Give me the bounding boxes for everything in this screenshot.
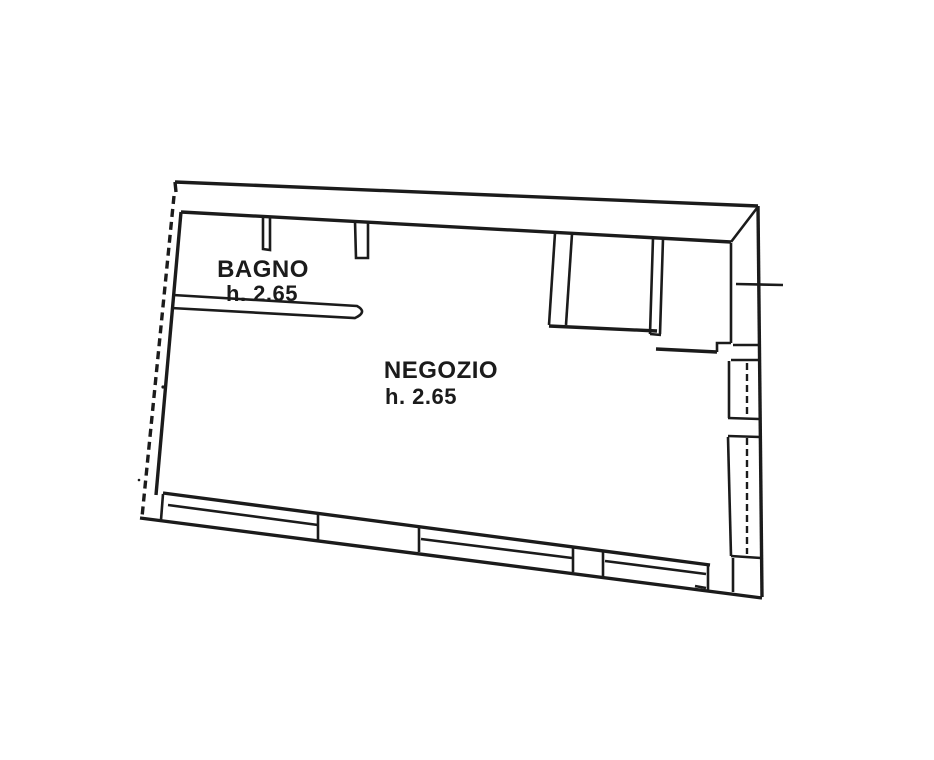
bagno-label: BAGNO (217, 256, 309, 283)
bottom-wall (140, 493, 762, 598)
right-window-lower-inner-line (728, 437, 731, 556)
right-wall-pier-upper (728, 418, 760, 437)
bottom-window-1-glazing-line (168, 505, 318, 525)
shaft-right-bottom-edge (656, 349, 717, 352)
inner-walls (156, 208, 757, 495)
top-wall-outer-line (175, 182, 758, 206)
speckle-dot-2 (138, 479, 141, 482)
bottom-right-corner-step (695, 586, 706, 588)
bottom-wall-top-edge (163, 493, 710, 565)
right-wall-sill-band (731, 345, 760, 360)
right-wall-pier-lower (731, 556, 761, 558)
room-labels: BAGNO h. 2.65 NEGOZIO h. 2.65 (217, 256, 498, 409)
shaft-left-bottom-edge (549, 326, 657, 331)
shaft-left-wall-outer (549, 233, 555, 325)
bottom-window-2-glazing-line (421, 539, 572, 558)
right-wall-section-tick (736, 284, 783, 285)
negozio-height-label: h. 2.65 (385, 384, 457, 409)
top-right-corner-diagonal (731, 208, 757, 242)
shaft-left-wall-inner (566, 234, 572, 325)
right-wall-details (728, 284, 783, 592)
speckle-dot-1 (161, 385, 164, 388)
door-jamb-stub-right (355, 221, 368, 258)
floor-plan-drawing: BAGNO h. 2.65 NEGOZIO h. 2.65 (0, 0, 934, 760)
right-wall-outer-line (758, 206, 762, 597)
shaft-middle-wall (650, 238, 663, 335)
bagno-height-label: h. 2.65 (226, 281, 298, 306)
negozio-label: NEGOZIO (384, 357, 498, 384)
floor-plan-page: BAGNO h. 2.65 NEGOZIO h. 2.65 (0, 0, 934, 760)
door-jamb-stub-left (263, 217, 270, 250)
shaft-corner-notch (717, 343, 731, 352)
shaft-block (549, 233, 731, 352)
bottom-wall-divider-1 (161, 494, 163, 520)
